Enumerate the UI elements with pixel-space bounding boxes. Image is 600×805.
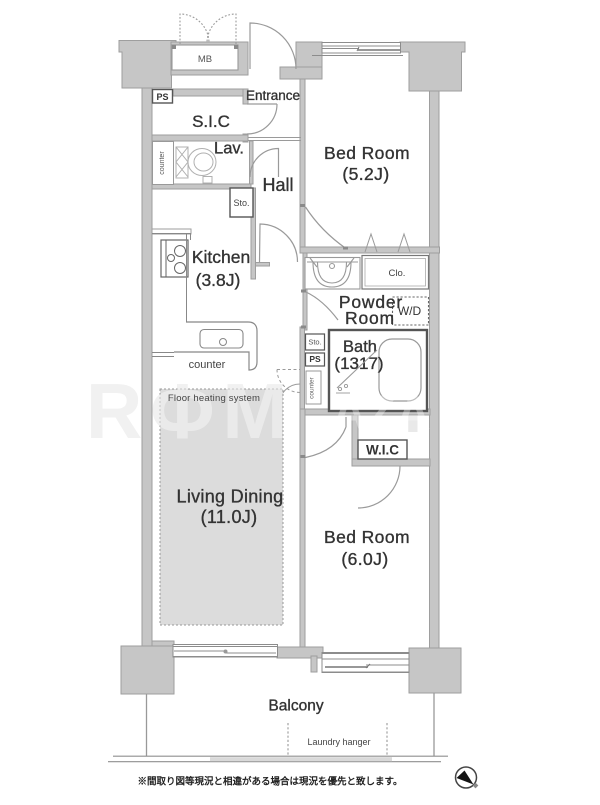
svg-text:(6.0J): (6.0J): [341, 549, 388, 569]
svg-text:PS: PS: [156, 92, 168, 102]
svg-text:S.I.C: S.I.C: [192, 112, 230, 131]
svg-text:Living Dining: Living Dining: [177, 487, 284, 507]
svg-text:※間取り図等現況と相違がある場合は現況を優先と致します。: ※間取り図等現況と相違がある場合は現況を優先と致します。: [137, 776, 402, 788]
svg-text:Bed Room: Bed Room: [324, 143, 410, 163]
svg-text:(1317): (1317): [334, 354, 383, 373]
svg-text:Sto.: Sto.: [233, 198, 249, 208]
svg-text:RΦM: RΦM: [86, 367, 295, 455]
svg-text:W.I.C: W.I.C: [366, 443, 399, 458]
svg-text:Kitchen: Kitchen: [192, 247, 250, 267]
svg-text:(5.2J): (5.2J): [342, 164, 389, 184]
svg-text:Laundry hanger: Laundry hanger: [307, 737, 370, 747]
svg-text:Floor heating system: Floor heating system: [168, 393, 260, 404]
svg-text:Entrance: Entrance: [246, 88, 300, 103]
svg-text:MB: MB: [198, 54, 212, 65]
svg-text:Clo.: Clo.: [389, 268, 406, 279]
svg-text:(11.0J): (11.0J): [201, 507, 258, 527]
svg-text:Sto.: Sto.: [308, 338, 321, 347]
svg-text:Balcony: Balcony: [268, 698, 323, 715]
svg-text:PS: PS: [309, 354, 321, 364]
svg-text:(3.8J): (3.8J): [196, 270, 241, 290]
svg-text:counter: counter: [309, 376, 316, 399]
svg-text:Room: Room: [345, 308, 395, 328]
svg-text:counter: counter: [159, 151, 166, 175]
svg-text:Lav.: Lav.: [214, 140, 244, 158]
svg-text:Bed Room: Bed Room: [324, 527, 410, 547]
svg-text:Hall: Hall: [262, 175, 293, 195]
svg-text:AZA: AZA: [332, 387, 431, 440]
